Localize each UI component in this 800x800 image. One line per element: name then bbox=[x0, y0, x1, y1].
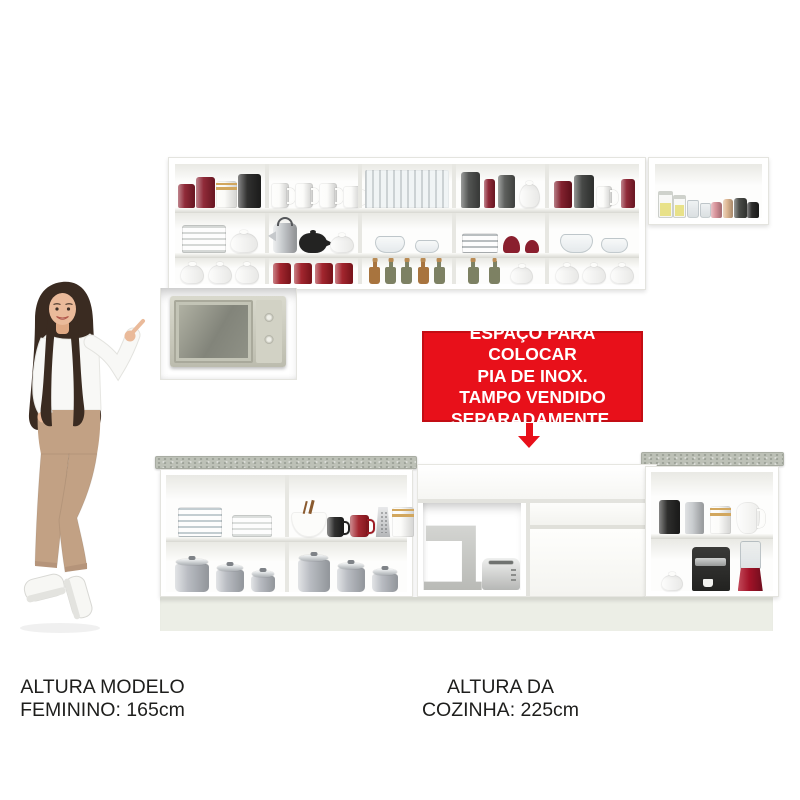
base-left-shelf-1 bbox=[166, 475, 407, 537]
shelf-cell bbox=[175, 213, 265, 253]
banner-line: PIA DE INOX. bbox=[424, 366, 641, 388]
cylg-item bbox=[392, 507, 414, 537]
glassbowl-item bbox=[375, 236, 405, 253]
shelf-cell bbox=[651, 539, 773, 591]
caption-kitchen-height: ALTURA DA COZINHA: 225cm bbox=[398, 676, 603, 722]
cyl-item bbox=[711, 202, 722, 218]
cyl-item bbox=[685, 502, 704, 534]
microwave-niche bbox=[160, 288, 297, 380]
shelf-cell bbox=[175, 164, 265, 208]
microwave-window bbox=[179, 305, 248, 358]
tureen-item bbox=[208, 265, 232, 284]
mug-item bbox=[271, 183, 289, 208]
base-cabinet-right bbox=[645, 466, 779, 597]
shelf-cell bbox=[452, 164, 546, 208]
bottle-item bbox=[489, 267, 500, 284]
cylg-item bbox=[216, 181, 237, 208]
jar-item bbox=[658, 192, 673, 218]
glassbowl-item bbox=[415, 240, 439, 253]
cylg-item bbox=[710, 506, 731, 534]
bottle-item bbox=[468, 267, 479, 284]
shelf-cell bbox=[545, 213, 639, 253]
model-eye-right bbox=[67, 307, 70, 310]
glass-item bbox=[687, 200, 699, 218]
cyl-item bbox=[461, 172, 480, 208]
upper-shelf-row-2 bbox=[175, 213, 639, 253]
mug-item bbox=[319, 183, 337, 208]
caption-line: FEMININO: 165cm bbox=[10, 699, 195, 722]
model-face bbox=[49, 293, 76, 325]
shelf-cell bbox=[655, 164, 762, 218]
upper-cabinet-main bbox=[168, 157, 646, 290]
counter-plinth bbox=[160, 597, 773, 631]
cyl-item bbox=[196, 177, 215, 208]
sink-body bbox=[418, 503, 656, 596]
model-shoe-front bbox=[63, 574, 94, 620]
shelf-cell bbox=[166, 475, 285, 537]
cyl-item bbox=[621, 179, 635, 208]
kettle-item bbox=[273, 223, 297, 253]
tureen-item bbox=[582, 266, 606, 284]
banner-line: TAMPO VENDIDO bbox=[424, 387, 641, 409]
cyl-item bbox=[554, 181, 572, 208]
tureen-item bbox=[661, 575, 683, 591]
upper-shelf-row-1 bbox=[175, 164, 639, 208]
sink-drawer-stack bbox=[530, 503, 656, 596]
product-image: ESPAÇO PARA COLOCAR PIA DE INOX. TAMPO V… bbox=[0, 0, 800, 800]
sink-top-band bbox=[418, 465, 656, 503]
model-figure bbox=[5, 276, 155, 636]
glassbowl-item bbox=[560, 234, 593, 253]
cyl-item bbox=[659, 500, 680, 534]
pot-item bbox=[298, 560, 330, 592]
caption-model-height: ALTURA MODELO FEMININO: 165cm bbox=[10, 676, 195, 722]
cyl-item bbox=[238, 174, 261, 208]
shelf-cell bbox=[166, 542, 285, 592]
sink-space-banner: ESPAÇO PARA COLOCAR PIA DE INOX. TAMPO V… bbox=[422, 331, 643, 422]
base-right-shelf-2 bbox=[651, 539, 773, 591]
base-left-shelf-2 bbox=[166, 542, 407, 592]
plates-item bbox=[232, 515, 272, 537]
base-right-shelf-1 bbox=[651, 472, 773, 534]
bottle-item bbox=[418, 267, 429, 284]
appliance-niche bbox=[418, 503, 530, 596]
microwave bbox=[170, 296, 286, 367]
tureen-item bbox=[555, 266, 579, 284]
cyl-item bbox=[734, 198, 747, 218]
caption-line: ALTURA DA bbox=[398, 676, 603, 699]
bottle-item bbox=[385, 267, 396, 284]
cyl-item bbox=[747, 202, 759, 218]
upper-right-shelf bbox=[655, 164, 762, 218]
tureen-item bbox=[519, 184, 540, 208]
model-eye-left bbox=[55, 307, 58, 310]
plates-item bbox=[182, 225, 226, 253]
shelf-cell bbox=[285, 542, 408, 592]
pbowl-item bbox=[525, 240, 539, 253]
glassbowl-item bbox=[601, 238, 628, 253]
bottle-item bbox=[401, 267, 412, 284]
toaster-item bbox=[482, 558, 520, 590]
appliance-niche-interior bbox=[423, 503, 521, 590]
arrow-down-icon bbox=[518, 436, 540, 448]
sink-base-section bbox=[417, 464, 657, 597]
pot-item bbox=[175, 564, 209, 592]
model-shadow bbox=[20, 623, 100, 633]
coffee-item bbox=[692, 547, 730, 591]
mug-item bbox=[295, 183, 313, 208]
mug-item bbox=[327, 517, 344, 537]
plates-item bbox=[178, 507, 222, 537]
shelf-cell bbox=[452, 213, 546, 253]
pot-item bbox=[372, 574, 398, 592]
cyl-item bbox=[498, 175, 515, 208]
cyl-item bbox=[294, 263, 312, 284]
pot-item bbox=[337, 568, 365, 592]
mug-item bbox=[350, 515, 369, 537]
cyl-item bbox=[574, 175, 594, 208]
cyl-item bbox=[315, 263, 333, 284]
shelf-cell bbox=[452, 258, 546, 284]
mixer-item bbox=[424, 520, 482, 590]
bottle-item bbox=[434, 267, 445, 284]
tureen-item bbox=[180, 265, 204, 284]
cyl-item bbox=[484, 179, 495, 208]
shelf-cell bbox=[545, 164, 639, 208]
shelf-cell bbox=[285, 475, 408, 537]
tureen-item bbox=[235, 265, 259, 284]
shelf-cell bbox=[265, 164, 359, 208]
model-shoe-back bbox=[22, 572, 66, 603]
countertop-right bbox=[641, 452, 784, 466]
cyl-item bbox=[178, 184, 195, 208]
door-front bbox=[530, 529, 656, 596]
tureen-item bbox=[610, 266, 634, 284]
cyl-item bbox=[335, 263, 353, 284]
base-cabinet-left bbox=[160, 469, 413, 597]
microwave-control-panel bbox=[256, 300, 282, 363]
banner-line: ESPAÇO PARA COLOCAR bbox=[424, 323, 641, 366]
shelf-cell bbox=[358, 258, 452, 284]
candle-item bbox=[723, 199, 733, 218]
shelf-cell bbox=[651, 472, 773, 534]
cyl-item bbox=[273, 263, 291, 284]
blender-item bbox=[738, 541, 763, 591]
shelf-cell bbox=[265, 213, 359, 253]
upper-shelf-row-3 bbox=[175, 258, 639, 284]
jug-item bbox=[736, 502, 760, 534]
pbowl-item bbox=[503, 236, 520, 253]
grater-item bbox=[375, 507, 392, 537]
caption-line: COZINHA: 225cm bbox=[398, 699, 603, 722]
countertop-left bbox=[155, 456, 417, 469]
tureen-item bbox=[510, 267, 533, 284]
tureen-item bbox=[330, 236, 354, 253]
caption-line: ALTURA MODELO bbox=[10, 676, 195, 699]
shelf-cell bbox=[545, 258, 639, 284]
shelf-cell bbox=[358, 213, 452, 253]
glass-item bbox=[700, 203, 711, 218]
pot-item bbox=[251, 576, 275, 592]
shelf-cell bbox=[358, 164, 452, 208]
shelf-cell bbox=[265, 258, 359, 284]
stems-item bbox=[365, 170, 449, 208]
jar-item bbox=[673, 196, 686, 218]
upper-cabinet-right bbox=[648, 157, 769, 225]
pot-item bbox=[216, 570, 244, 592]
drawer-front bbox=[530, 503, 656, 529]
shelf-cell bbox=[175, 258, 265, 284]
mug-item bbox=[596, 186, 612, 208]
bowlsp-item bbox=[291, 512, 327, 537]
bottle-item bbox=[369, 267, 380, 284]
plates-item bbox=[462, 233, 498, 253]
microwave-door bbox=[174, 300, 253, 363]
arrow-down-icon bbox=[526, 423, 533, 437]
tureen-item bbox=[230, 233, 258, 253]
teapot-item bbox=[299, 233, 327, 253]
